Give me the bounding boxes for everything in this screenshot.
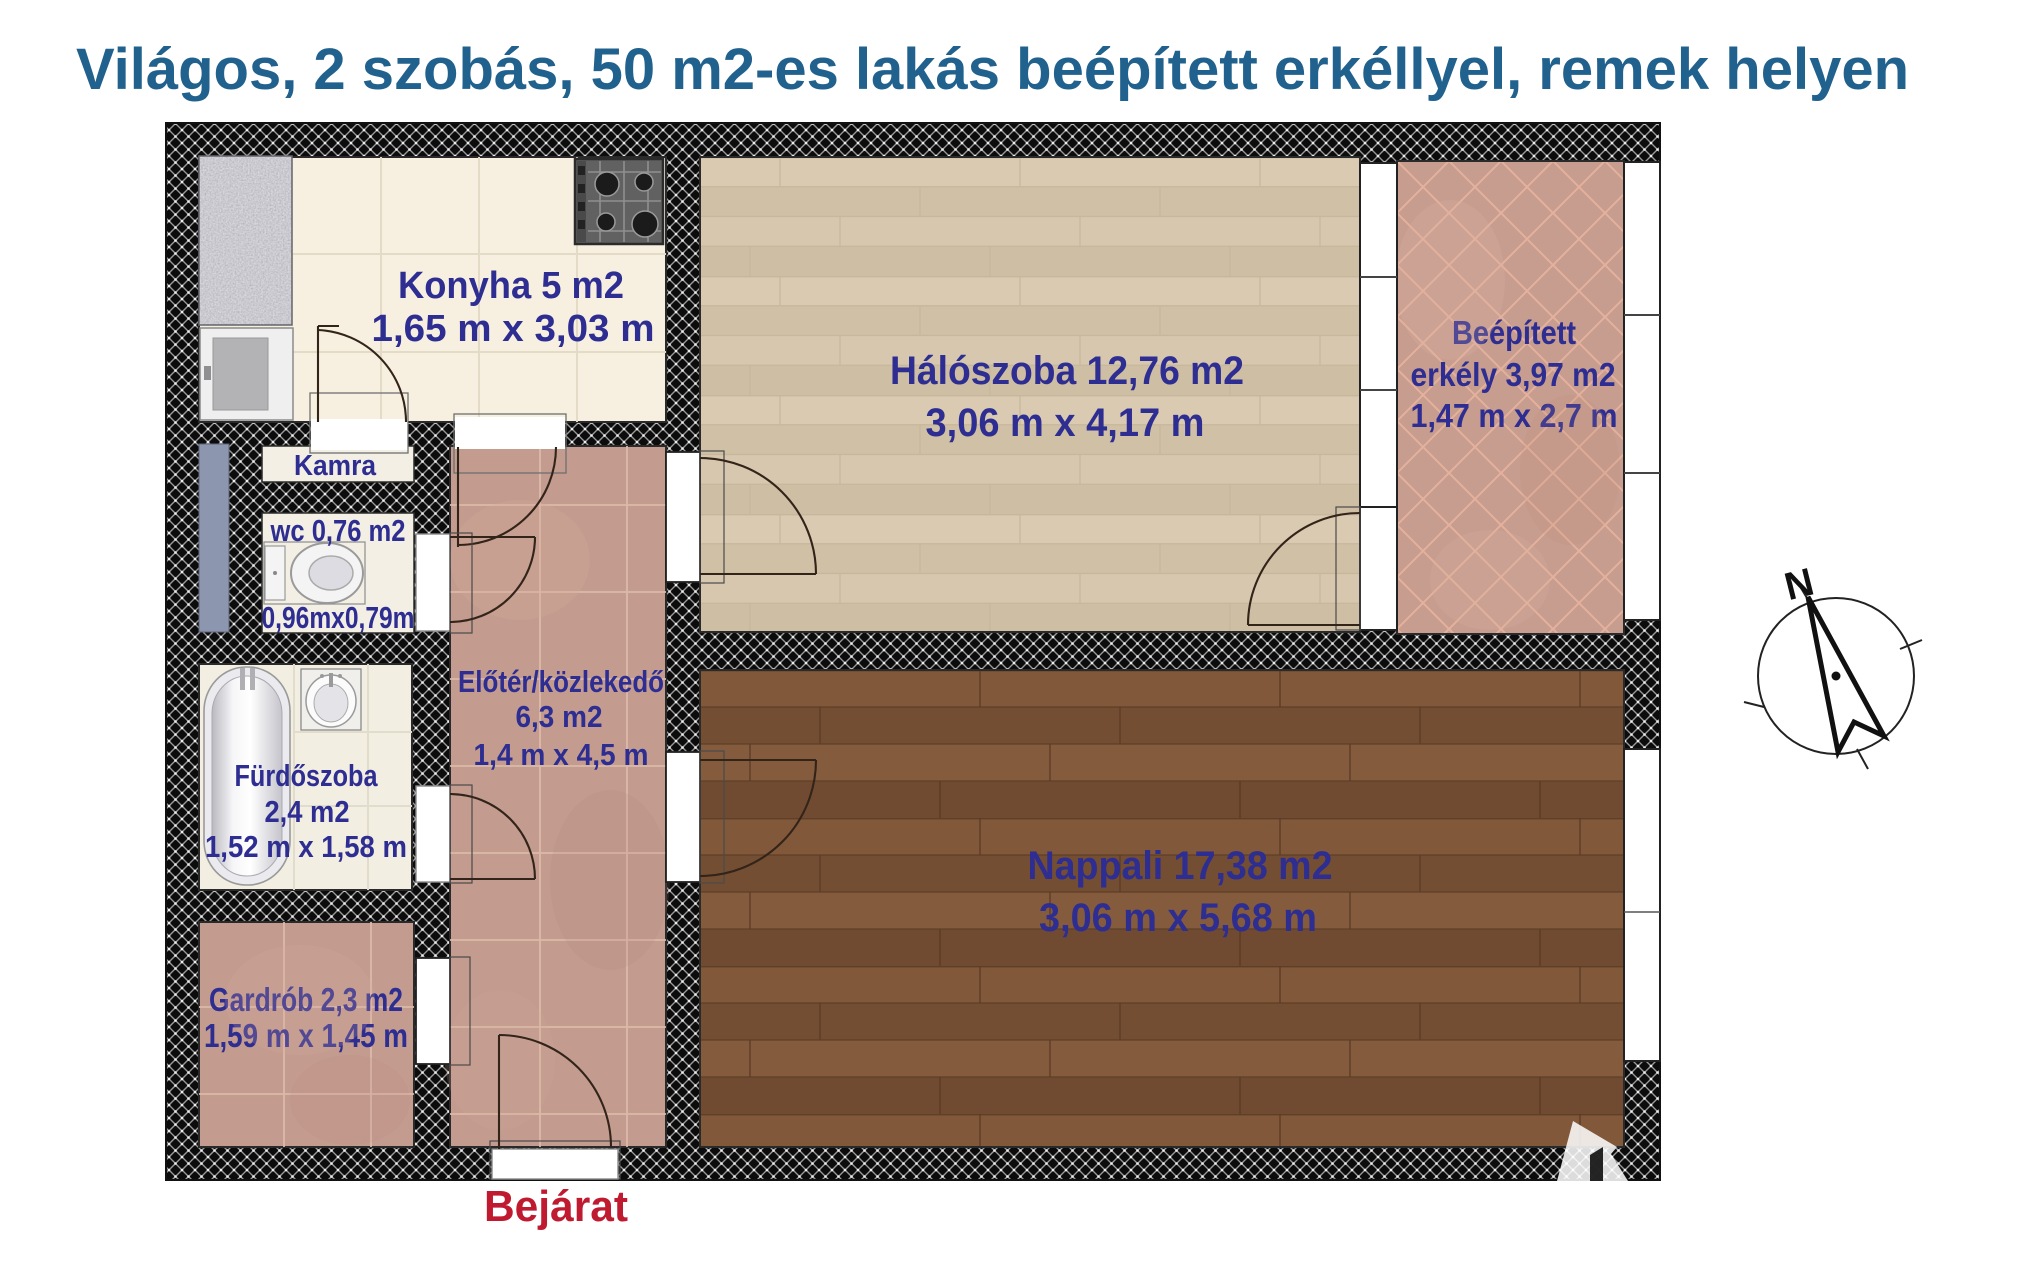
svg-text:wc 0,76 m2: wc 0,76 m2	[270, 513, 406, 548]
svg-text:1,4 m x 4,5 m: 1,4 m x 4,5 m	[474, 737, 649, 772]
svg-text:erkély 3,97 m2: erkély 3,97 m2	[1411, 356, 1616, 393]
svg-text:3,06 m x 4,17 m: 3,06 m x 4,17 m	[926, 401, 1205, 445]
svg-text:3,06 m x 5,68 m: 3,06 m x 5,68 m	[1039, 896, 1317, 940]
svg-text:Világos, 2 szobás, 50 m2-es la: Világos, 2 szobás, 50 m2-es lakás beépít…	[76, 37, 1909, 102]
svg-text:2,4 m2: 2,4 m2	[265, 794, 350, 829]
svg-text:Bejárat: Bejárat	[484, 1182, 628, 1231]
svg-text:Fürdőszoba: Fürdőszoba	[235, 758, 379, 793]
svg-text:Kamra: Kamra	[294, 450, 377, 482]
svg-text:6,3 m2: 6,3 m2	[516, 699, 603, 734]
svg-text:1,52 m x 1,58 m: 1,52 m x 1,58 m	[205, 829, 407, 864]
svg-text:Konyha 5 m2: Konyha 5 m2	[398, 265, 624, 307]
svg-text:Nappali 17,38 m2: Nappali 17,38 m2	[1028, 844, 1333, 888]
svg-text:1,65 m x 3,03 m: 1,65 m x 3,03 m	[372, 308, 655, 350]
svg-text:0,96mx0,79m: 0,96mx0,79m	[262, 600, 415, 635]
svg-text:Hálószoba 12,76 m2: Hálószoba 12,76 m2	[890, 349, 1244, 393]
svg-text:Előtér/közlekedő: Előtér/közlekedő	[458, 664, 664, 699]
